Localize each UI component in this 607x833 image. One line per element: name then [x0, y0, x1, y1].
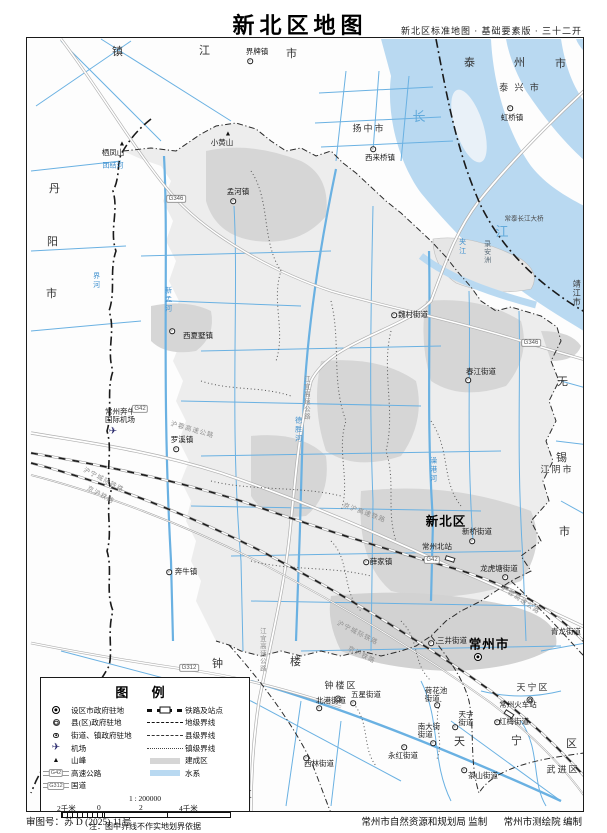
- legend-title: 图 例: [41, 682, 249, 701]
- legend-item: 街道、镇政府驻地: [41, 729, 145, 742]
- legend-item: 水系: [145, 767, 245, 780]
- legend-item: 镇级界线: [145, 742, 245, 755]
- prefecture-boundary-icon: [147, 722, 183, 723]
- mountain-icon: ▲: [53, 757, 60, 764]
- supervisor-credit: 常州市自然资源和规划局 监制: [361, 818, 487, 828]
- legend-right-column: 铁路及站点 地级界线 县级界线 镇级界线 建成区 水系: [145, 704, 245, 792]
- legend-item: ✈机场: [41, 742, 145, 755]
- legend-item: ▲山峰: [41, 754, 145, 767]
- airport-icon: ✈: [52, 743, 60, 753]
- producer-credit: 常州市测绘院 编制: [504, 818, 582, 828]
- page-subtitle: 新北区标准地图 · 基础要素版 · 三十二开: [401, 24, 582, 37]
- legend-item: 铁路及站点: [145, 704, 245, 717]
- expressway-icon: G42: [43, 771, 69, 776]
- credits: 常州市自然资源和规划局 监制 常州市测绘院 编制: [347, 814, 582, 828]
- scale-ratio: 1 : 200000: [41, 794, 249, 803]
- legend-item: 县(区)政府驻地: [41, 717, 145, 730]
- built-up-swatch: [150, 758, 180, 764]
- legend-item: G42高速公路: [41, 767, 145, 780]
- review-number: 审图号：苏 D (2025) 11号: [26, 814, 131, 828]
- page-title: 新北区地图: [160, 8, 440, 40]
- county-govt-icon: [53, 719, 60, 726]
- legend-item: 建成区: [145, 754, 245, 767]
- town-boundary-icon: [147, 748, 183, 749]
- national-road-icon: G312: [43, 783, 69, 788]
- legend-left-column: 设区市政府驻地 县(区)政府驻地 街道、镇政府驻地 ✈机场 ▲山峰 G42高速公…: [41, 704, 145, 792]
- railway-icon: [147, 709, 183, 712]
- legend-item: 设区市政府驻地: [41, 704, 145, 717]
- legend-item: 地级界线: [145, 717, 245, 730]
- legend-item: G312国道: [41, 780, 145, 793]
- legend-box: 图 例 设区市政府驻地 县(区)政府驻地 街道、镇政府驻地 ✈机场 ▲山峰 G4…: [40, 677, 250, 811]
- water-swatch: [150, 770, 180, 776]
- town-govt-icon: [53, 733, 59, 739]
- map-page: 新北区地图 新北区标准地图 · 基础要素版 · 三十二开: [0, 0, 607, 833]
- county-boundary-icon: [147, 735, 183, 736]
- city-govt-icon: [52, 706, 60, 714]
- legend-item: 县级界线: [145, 729, 245, 742]
